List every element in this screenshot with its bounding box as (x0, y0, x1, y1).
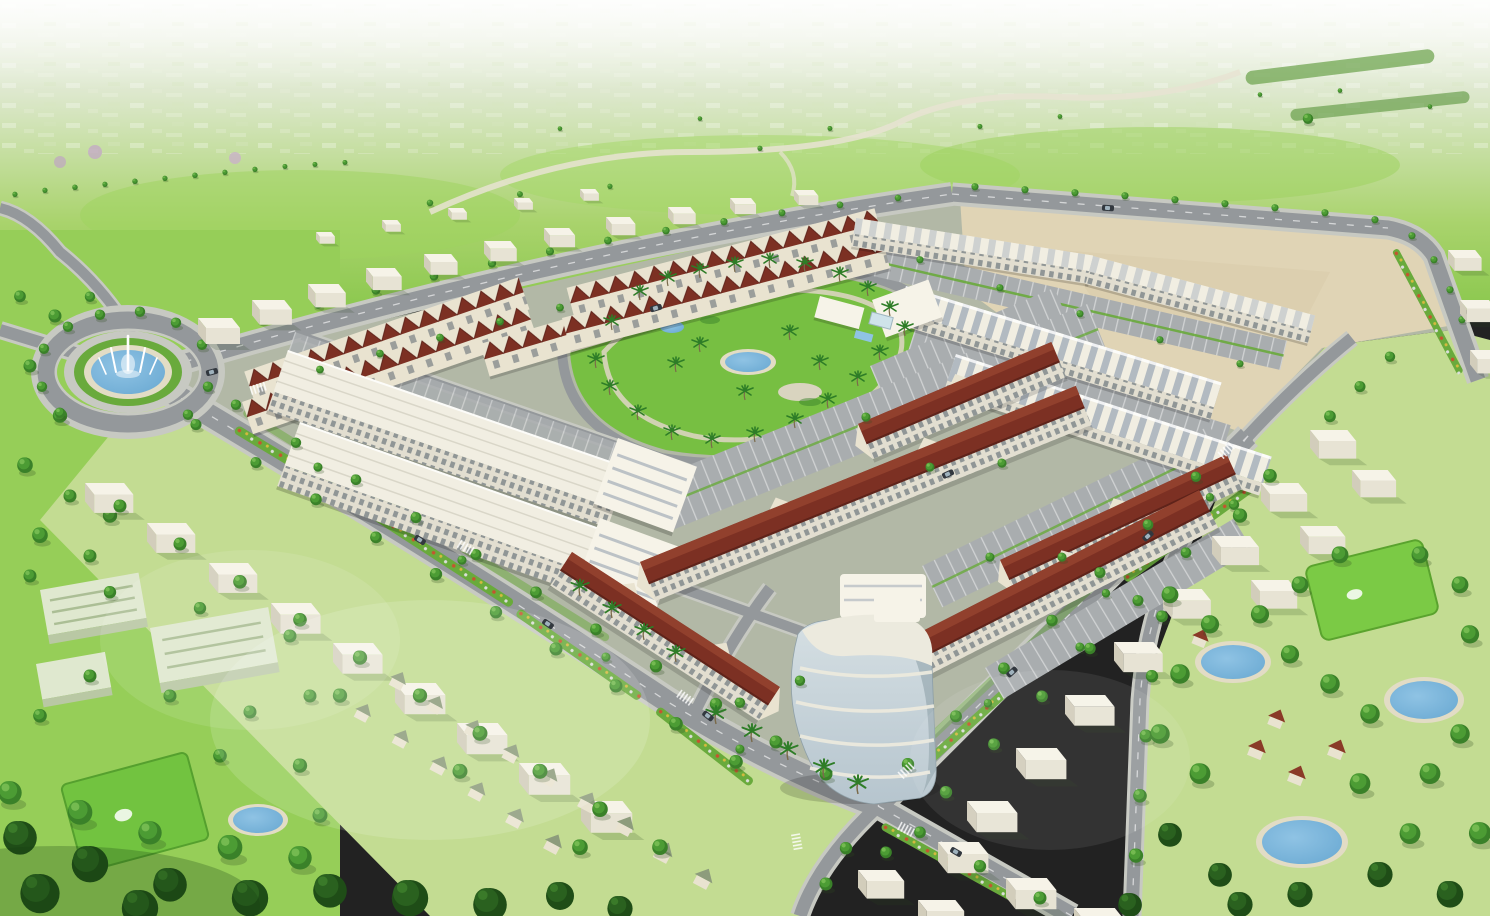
round-pond (1262, 820, 1342, 864)
car (1102, 205, 1114, 212)
round-pond (1390, 681, 1458, 719)
fountain-splash (116, 370, 140, 378)
park-tree (1208, 863, 1232, 887)
park-paved-plaza (778, 383, 822, 401)
park-tree (1158, 823, 1182, 847)
masterplan-render: Aerial masterplan rendering of a residen… (0, 0, 1490, 916)
blossom-tree (54, 156, 66, 168)
light-wash (100, 550, 400, 730)
canopy-tree (313, 874, 347, 908)
street-tree (1084, 643, 1098, 657)
street-tree (880, 847, 894, 861)
canopy-tree (392, 880, 428, 916)
blossom-tree (88, 145, 102, 159)
penthouse (874, 596, 920, 622)
street-tree (820, 878, 836, 894)
massing-house (918, 900, 975, 916)
park-pond (725, 352, 771, 372)
park-shrub (799, 398, 821, 406)
park-tree (1437, 881, 1464, 908)
park-tree (1118, 893, 1142, 916)
garden-pond (233, 807, 283, 833)
canopy-tree (546, 882, 574, 910)
park-shrub (700, 316, 720, 324)
park-tree (1367, 862, 1392, 887)
blossom-tree (229, 152, 241, 164)
park-tree (1287, 882, 1312, 907)
round-pond (1201, 645, 1265, 679)
light-wash (910, 670, 1190, 850)
massing-house (858, 870, 915, 905)
park-tree (1469, 822, 1490, 849)
render-stage: Aerial masterplan rendering of a residen… (0, 0, 1490, 916)
